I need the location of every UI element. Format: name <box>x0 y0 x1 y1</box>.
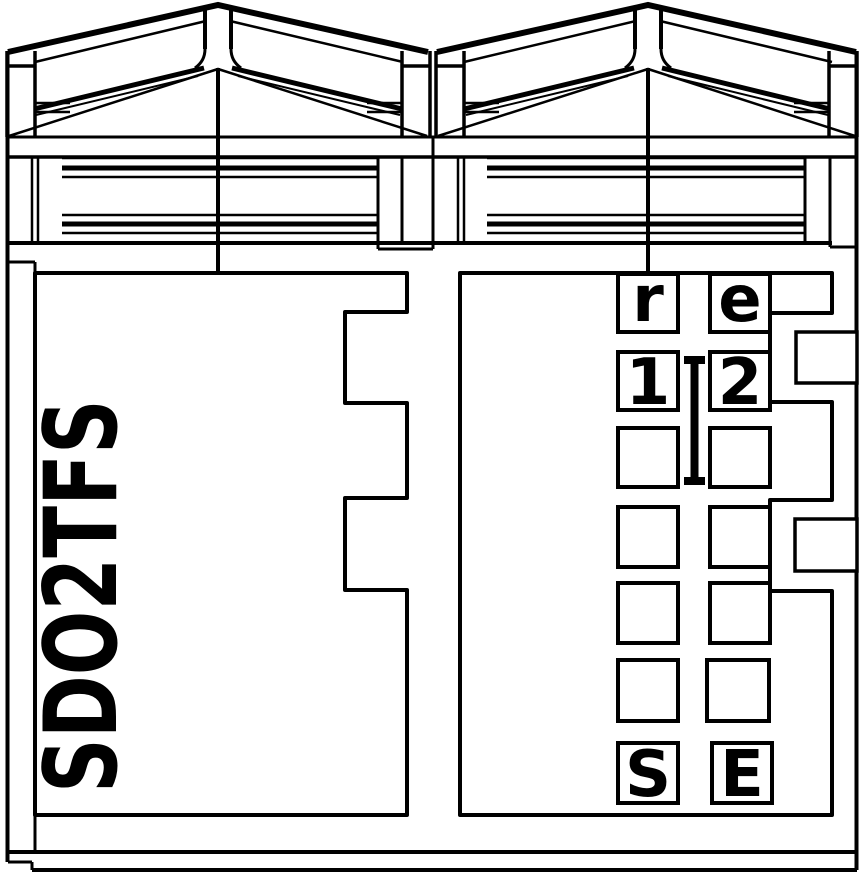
terminal-label-1: 1 <box>626 346 671 420</box>
terminal-label-S: S <box>625 738 671 812</box>
terminal-label-e: e <box>718 263 761 337</box>
side-label-text: SDO2TFS <box>22 399 139 793</box>
terminal-box-blank-l2 <box>618 507 678 567</box>
terminal-box-blank-r4 <box>707 660 769 721</box>
terminal-label-2: 2 <box>718 346 763 420</box>
terminal-box-blank-r3 <box>710 583 770 643</box>
side-slot-lower <box>795 519 857 571</box>
side-slot-upper <box>796 332 857 383</box>
relay-module-drawing: SDO2TFS <box>0 0 864 882</box>
terminal-box-blank-r2 <box>710 507 770 567</box>
terminal-box-blank-r1 <box>710 428 770 487</box>
terminal-box-blank-l4 <box>618 660 678 721</box>
terminal-label-E: E <box>720 738 764 812</box>
terminal-panel: r e 1 2 S E <box>460 263 857 815</box>
device-drawing: SDO2TFS <box>0 0 864 882</box>
terminal-box-blank-l3 <box>618 583 678 643</box>
terminal-box-blank-l1 <box>618 428 678 487</box>
terminal-label-r: r <box>632 263 664 337</box>
